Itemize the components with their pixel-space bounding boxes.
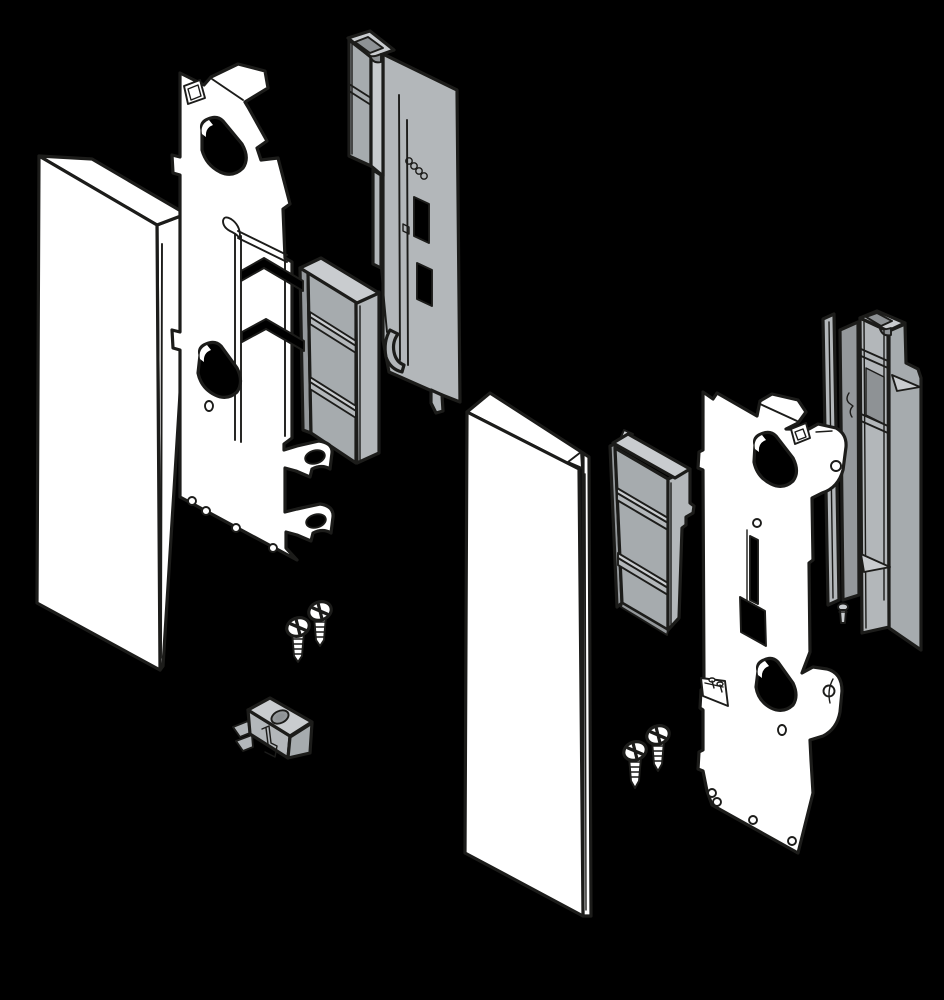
edge-hole: [708, 789, 716, 797]
edge-hole: [749, 816, 757, 824]
panel-front-face: [465, 412, 583, 916]
right-assembly: Right-hand bracket assembly Drawer front…: [465, 311, 921, 916]
clip-wing: [233, 721, 250, 737]
panel-edge-line: [161, 244, 162, 658]
screw: [621, 739, 649, 788]
screws-right: Countersunk fixing screws, 2x: [621, 723, 672, 788]
edge-hole: [713, 798, 721, 806]
cover-cap-left: Cover cap (left): [300, 258, 379, 463]
housing-plate-line: [407, 120, 408, 365]
edge-hole: [269, 544, 277, 552]
edge-hole: [232, 524, 240, 532]
diagram-stage: Exploded isometric assembly diagram of d…: [0, 0, 944, 1000]
tower-right-wall: [371, 52, 383, 176]
housing-foot: [431, 390, 443, 413]
clip-wing: [236, 735, 253, 751]
small-hole: [205, 401, 213, 411]
mid-slot: [750, 536, 758, 604]
hook-inner-line: [816, 431, 832, 432]
front-panel-right: Drawer front panel (right): [465, 393, 591, 916]
cover-cap-right: Cover cap (right): [610, 430, 694, 635]
bracket-plate-right: Steel front fixing bracket plate (right): [698, 392, 846, 853]
edge-hole: [188, 497, 196, 505]
edge-hole: [788, 837, 796, 845]
mounting-clip: Mounting clip adapter: [233, 698, 312, 758]
screw: [306, 599, 334, 646]
left-assembly: Left-hand bracket assembly Drawer front …: [37, 31, 460, 758]
front-panel-left: Drawer front panel (left): [37, 156, 188, 670]
panel-front-face: [37, 156, 160, 670]
panel-side-face: [583, 453, 591, 916]
tower-recess: [866, 368, 884, 424]
cap-interior: [308, 272, 356, 463]
screw: [644, 723, 672, 771]
hook-pin-hole: [831, 461, 841, 471]
screws-left: Countersunk fixing screws, 2x: [284, 599, 334, 662]
housing-slot: [414, 197, 429, 243]
cap-right-wall: [668, 469, 694, 630]
screw: [284, 615, 312, 662]
edge-hole: [202, 507, 210, 515]
tower-rail: [373, 170, 381, 268]
mid-hole: [753, 519, 761, 527]
housing-slot: [417, 263, 432, 306]
panel-edge-line: [585, 474, 586, 910]
exploded-diagram: Exploded isometric assembly diagram of d…: [0, 0, 944, 1000]
housing-right-plate: [889, 324, 921, 650]
small-hole: [778, 725, 786, 735]
housing-plate-line: [399, 95, 400, 360]
